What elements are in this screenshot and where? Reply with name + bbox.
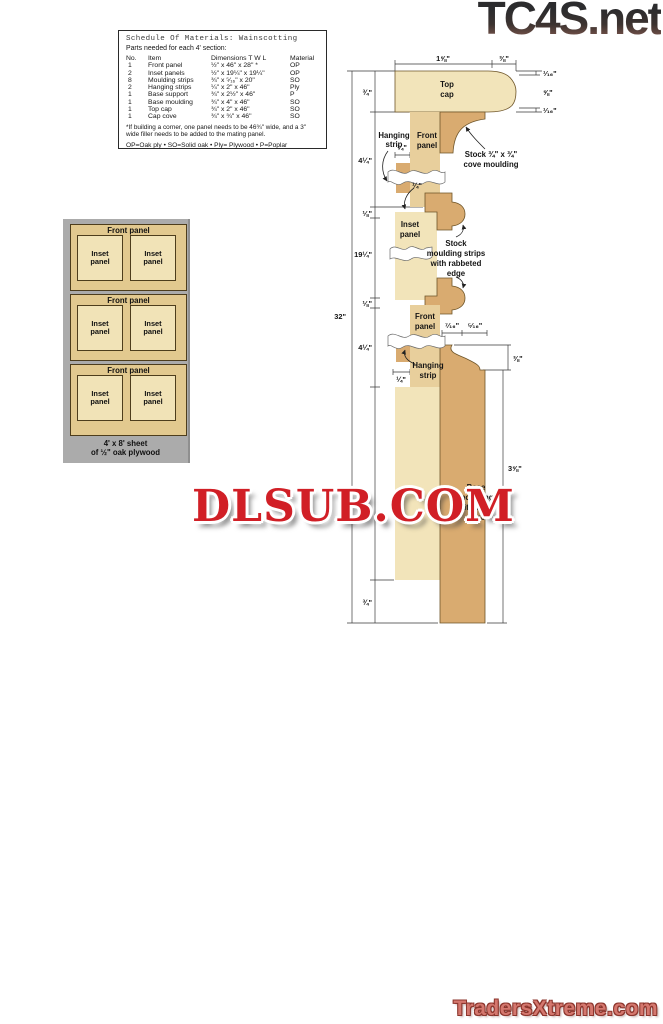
piece-label: Top xyxy=(440,80,454,89)
cove-moulding-piece xyxy=(440,112,485,153)
front-panel-label: Front panel xyxy=(71,225,186,235)
inset-panel: Inset panel xyxy=(77,375,123,421)
inset-panel: Inset panel xyxy=(130,375,176,421)
materials-subtitle: Parts needed for each 4' section: xyxy=(126,45,320,52)
dim-label: ⁵⁄₁₆" xyxy=(468,321,483,330)
inset-panel-label: Inset panel xyxy=(84,250,116,266)
cell: Inset panels xyxy=(148,70,211,77)
piece-label: Hanging xyxy=(412,361,443,370)
wainscoting-plan-page: TC4S.net Schedule Of Materials: Wainscot… xyxy=(0,0,663,1024)
dim-label: ¾" xyxy=(362,598,372,607)
front-panel-section: Front panel Inset panel Inset panel xyxy=(70,224,187,291)
col-header: No. xyxy=(126,55,148,62)
cell: ½" x 46" x 28" * xyxy=(211,62,290,69)
leader-arrow xyxy=(456,277,463,288)
cell: Front panel xyxy=(148,62,211,69)
tradersxtreme-watermark: TradersXtreme.com xyxy=(453,997,658,1021)
dim-label: 4¼" xyxy=(358,156,372,165)
dim-label: 32" xyxy=(334,312,346,321)
inset-panel-label: Inset panel xyxy=(137,390,169,406)
dlsub-watermark: DLSUB.COM xyxy=(192,481,478,532)
cell: Moulding strips xyxy=(148,77,211,84)
dim-label: ⅛" xyxy=(362,299,372,308)
tc4s-logo: TC4S.net xyxy=(478,0,661,45)
front-panel-section: Front panel Inset panel Inset panel xyxy=(70,294,187,361)
sheet-caption-line2: of ½" oak plywood xyxy=(63,449,188,458)
front-panel-label: Front panel xyxy=(71,295,186,305)
dim-label: ⁷⁄₁₆" xyxy=(445,321,460,330)
dim-label: ⅜" xyxy=(513,354,523,363)
cell: ¾" x 2" x 46" xyxy=(211,106,290,113)
cell: SO xyxy=(290,77,320,84)
materials-table: No. Item Dimensions T W L Material 1 Fro… xyxy=(126,55,320,121)
dim-label: 3⅝" xyxy=(508,464,522,473)
cell: 1 xyxy=(126,113,148,120)
cell: Hanging strips xyxy=(148,84,211,91)
dim-label: 19¼" xyxy=(354,250,372,259)
cell: 1 xyxy=(126,62,148,69)
dim-label: 4¼" xyxy=(358,343,372,352)
dim-label: ¹⁄₁₆" xyxy=(543,106,557,115)
dim-label: ⅝" xyxy=(543,88,553,97)
cell: 8 xyxy=(126,77,148,84)
cell: P xyxy=(290,91,320,98)
cell: 2 xyxy=(126,70,148,77)
inset-panel: Inset panel xyxy=(130,235,176,281)
materials-footnote: *If building a corner, one panel needs t… xyxy=(126,124,320,138)
break-line xyxy=(390,247,432,261)
piece-label: Stock ¾" x ¾" xyxy=(465,150,518,159)
sheet-caption: 4' x 8' sheet of ½" oak plywood xyxy=(63,440,188,457)
cell: SO xyxy=(290,99,320,106)
piece-label: panel xyxy=(415,322,435,331)
inset-panel-label: Inset panel xyxy=(84,320,116,336)
piece-label: panel xyxy=(417,141,437,150)
piece-label: strip xyxy=(386,140,403,149)
cell: 1 xyxy=(126,91,148,98)
col-header: Item xyxy=(148,55,211,62)
dim-label: ¼" xyxy=(412,181,422,190)
dim-label: ¹⁄₁₆" xyxy=(543,69,557,78)
cell: ¾" x 2½" x 46" xyxy=(211,91,290,98)
inset-panel: Inset panel xyxy=(77,305,123,351)
cross-section-diagram: 1⅝" ⅜" ¹⁄₁₆" ⅝" ¹⁄₁₆" ¾" 4¼" ⅛" 19¼" ⅛" … xyxy=(330,50,560,630)
cell: Base support xyxy=(148,91,211,98)
inset-panel-label: Inset panel xyxy=(137,250,169,266)
dim-label: ¼" xyxy=(396,375,406,384)
piece-label: cove moulding xyxy=(463,160,518,169)
inset-panel-label: Inset panel xyxy=(137,320,169,336)
cell: ¾" x ⁵⁄₁₆" x 20" xyxy=(211,77,290,84)
front-panel-section: Front panel Inset panel Inset panel xyxy=(70,364,187,436)
cell: SO xyxy=(290,113,320,120)
cell: Cap cove xyxy=(148,113,211,120)
piece-label: moulding strips xyxy=(427,249,486,258)
top-cap-piece xyxy=(395,71,516,112)
plywood-sheet-layout: Front panel Inset panel Inset panel Fron… xyxy=(63,219,190,463)
leader-arrow xyxy=(466,127,485,149)
dim-label: 1⅝" xyxy=(436,54,450,63)
piece-label: panel xyxy=(400,230,420,239)
inset-panel: Inset panel xyxy=(77,235,123,281)
piece-label: Front xyxy=(415,312,435,321)
col-header: Material xyxy=(290,55,320,62)
cell: ½" x 19¼" x 19¼" xyxy=(211,70,290,77)
piece-label: cap xyxy=(440,90,454,99)
materials-schedule: Schedule Of Materials: Wainscotting Part… xyxy=(118,30,327,149)
cell: 2 xyxy=(126,84,148,91)
piece-label: Stock xyxy=(445,239,467,248)
dim-label: ⅛" xyxy=(362,209,372,218)
leader-arrow xyxy=(456,225,463,237)
piece-label: Hanging xyxy=(378,131,409,140)
cell: 1 xyxy=(126,106,148,113)
cell: Ply xyxy=(290,84,320,91)
materials-legend: OP=Oak ply • SO=Solid oak • Ply= Plywood… xyxy=(126,142,320,149)
dim-label: ¾" xyxy=(362,88,372,97)
cell: Top cap xyxy=(148,106,211,113)
inset-panel: Inset panel xyxy=(130,305,176,351)
front-panel-label: Front panel xyxy=(71,365,186,375)
inset-panel-label: Inset panel xyxy=(84,390,116,406)
piece-label: edge xyxy=(447,269,466,278)
dim-label: ⅜" xyxy=(499,54,509,63)
cell: OP xyxy=(290,70,320,77)
cell: SO xyxy=(290,106,320,113)
materials-title: Schedule Of Materials: Wainscotting xyxy=(126,35,320,43)
cell: ¾" x 4" x 46" xyxy=(211,99,290,106)
piece-label: strip xyxy=(420,371,437,380)
cell: OP xyxy=(290,62,320,69)
cell: Base moulding xyxy=(148,99,211,106)
cell: 1 xyxy=(126,99,148,106)
piece-label: Front xyxy=(417,131,437,140)
cell: ¾" x ¾" x 46" xyxy=(211,113,290,120)
piece-label: with rabbeted xyxy=(430,259,482,268)
leader-arrow xyxy=(383,151,388,181)
break-line xyxy=(388,334,445,348)
piece-label: Inset xyxy=(401,220,420,229)
